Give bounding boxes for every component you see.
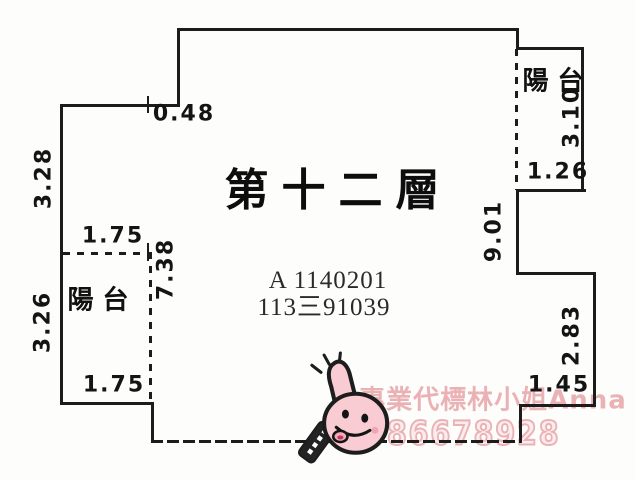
wall-right-balcony-bottom	[516, 189, 586, 192]
left-balcony-dashed-divider-vertical	[149, 252, 152, 404]
dim-left-balcony-side: 3.26	[31, 291, 56, 353]
case-number-line2: 113三91039	[257, 287, 390, 323]
floor-title: 第十二層	[212, 154, 453, 218]
dim-bottom-right-wall: 1.45	[528, 373, 590, 398]
wall-right-lower-edge	[593, 272, 596, 407]
dim-left-balcony-bottom: 1.75	[83, 373, 145, 398]
wall-right-mid-horizontal	[516, 272, 596, 275]
dim-right-wall-mid: 9.01	[482, 200, 507, 262]
wall-right-balcony-top	[516, 47, 584, 50]
dim-right-lower-wall: 2.83	[560, 304, 585, 366]
wall-top-edge	[177, 28, 519, 31]
dim-right-balcony-side: 3.10	[560, 86, 585, 148]
left-balcony-dashed-divider-horizontal	[63, 252, 151, 255]
dim-right-balcony-bottom: 1.26	[527, 160, 589, 185]
floor-plan-scan: 專業代標林小姐Anna 0986678928 第十二層 A 1140201 11…	[0, 0, 635, 480]
thumbs-up-face-mascot-icon	[297, 351, 400, 468]
left-balcony-label: 陽台	[58, 280, 137, 317]
wall-top-left-notch-vertical	[177, 28, 180, 107]
dim-top-notch: 0.48	[153, 102, 215, 127]
wall-bottom-right-step-vertical	[519, 404, 522, 443]
wall-bottom-left-step	[151, 402, 154, 443]
dim-left-balcony-top: 1.75	[82, 224, 144, 249]
wall-left-balcony-bottom	[60, 402, 154, 405]
dimension-tick	[147, 243, 149, 261]
wall-right-mid-vertical	[516, 190, 519, 275]
dim-interior-partition: 7.38	[154, 238, 179, 300]
dimension-tick	[147, 96, 149, 113]
wall-top-right-step	[516, 28, 519, 50]
wall-bottom-right-step-horizontal	[519, 404, 596, 407]
dim-left-upper-wall: 3.28	[32, 147, 57, 209]
